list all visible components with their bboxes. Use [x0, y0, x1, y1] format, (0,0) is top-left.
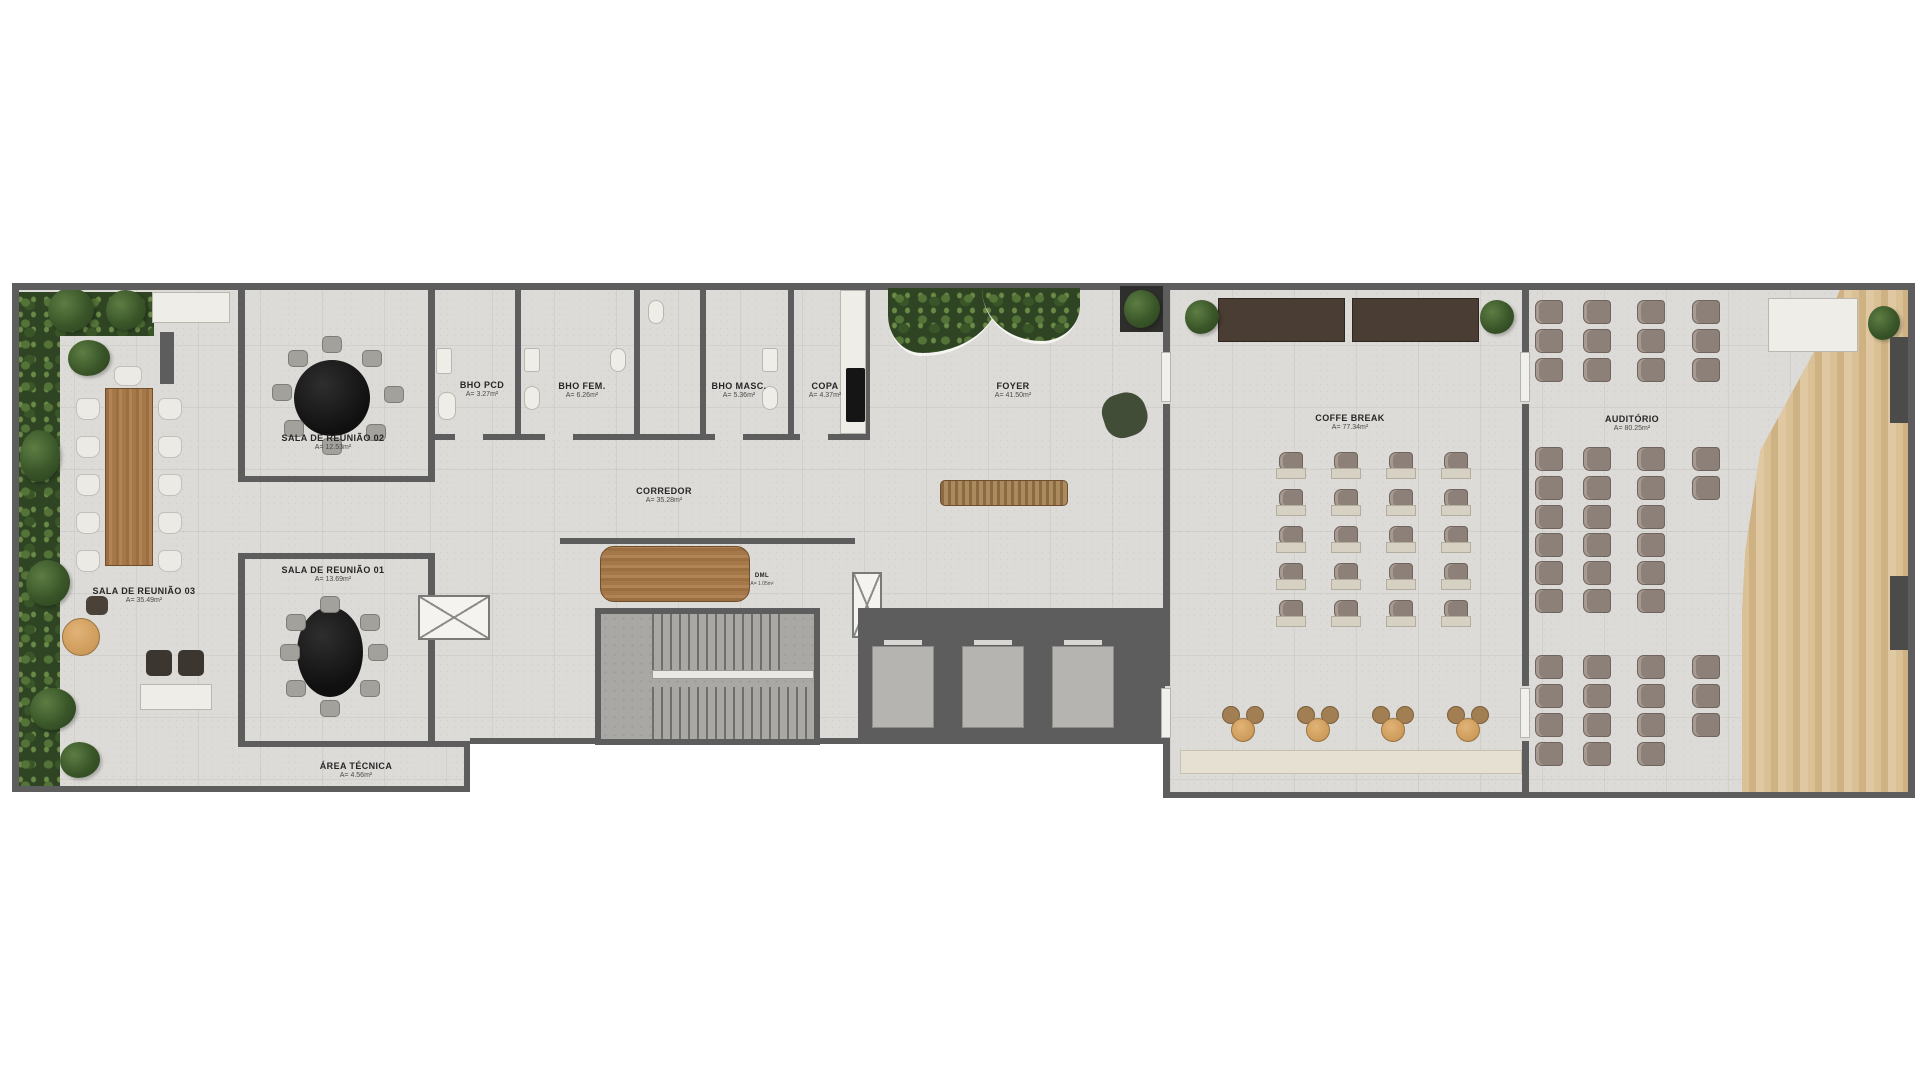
- auditorium-chair: [1692, 476, 1720, 500]
- wall-area-tecnica-right: [464, 747, 470, 792]
- wc-fixture: [524, 386, 540, 410]
- auditorium-chair: [1637, 505, 1665, 529]
- door-gap: [800, 434, 828, 440]
- auditorium-chair: [1535, 742, 1563, 766]
- wall-outer-bottom-right: [1170, 792, 1915, 798]
- meeting-chair: [114, 366, 142, 386]
- auditorium-chair: [1583, 684, 1611, 708]
- auditorium-chair: [1535, 329, 1563, 353]
- auditorium-chair: [1583, 655, 1611, 679]
- av-wall-cabinet: [1890, 337, 1908, 423]
- training-table: [1331, 542, 1361, 553]
- wall-bho-masc-left: [700, 283, 706, 440]
- meeting-chair: [320, 700, 340, 717]
- auditorium-chair: [1692, 329, 1720, 353]
- meeting-chair: [76, 398, 100, 420]
- floor-plan-canvas: SALA DE REUNIÃO 03 A= 35.49m² SALA DE RE…: [0, 0, 1920, 1080]
- training-table: [1441, 505, 1471, 516]
- wall-sala01-left: [238, 553, 245, 747]
- meeting-chair: [76, 512, 100, 534]
- foyer-slat-bench: [940, 480, 1068, 506]
- auditorium-chair: [1637, 358, 1665, 382]
- elevator-door: [1064, 640, 1102, 645]
- meeting-chair: [76, 436, 100, 458]
- auditorium-chair: [1535, 358, 1563, 382]
- auditorium-chair: [1535, 476, 1563, 500]
- door-gap: [545, 434, 573, 440]
- cooktop: [846, 368, 865, 422]
- auditorium-chair: [1637, 713, 1665, 737]
- shaft-duct-left: [418, 595, 490, 640]
- auditorium-chair: [1583, 742, 1611, 766]
- lounge-chair: [146, 650, 172, 676]
- wc-fixture: [610, 348, 626, 372]
- meeting-chair: [158, 436, 182, 458]
- wall-coffebreak-left: [1163, 283, 1170, 352]
- door-leaf: [1520, 352, 1530, 402]
- auditorium-chair: [1535, 684, 1563, 708]
- auditorium-chair: [1692, 655, 1720, 679]
- training-table: [1276, 542, 1306, 553]
- training-table: [1386, 616, 1416, 627]
- stair-flight-lower: [652, 687, 814, 739]
- auditorium-chair: [1535, 533, 1563, 557]
- wall-bho-fem-right: [634, 283, 640, 440]
- meeting-chair: [280, 644, 300, 661]
- auditorium-chair: [1692, 300, 1720, 324]
- auditorium-chair: [1535, 447, 1563, 471]
- av-wall-cabinet: [1890, 576, 1908, 650]
- meeting-chair: [362, 350, 382, 367]
- auditorium-chair: [1637, 561, 1665, 585]
- wall-stub-sala03: [160, 332, 174, 384]
- auditorium-chair: [1692, 447, 1720, 471]
- auditorium-chair: [1583, 533, 1611, 557]
- wall-area-tecnica-top: [238, 741, 470, 747]
- wall-outer-bottom-left: [12, 786, 470, 792]
- auditorium-chair: [1637, 684, 1665, 708]
- auditorium-chair: [1583, 358, 1611, 382]
- auditorium-chair: [1535, 561, 1563, 585]
- buffet-table: [1218, 298, 1345, 342]
- wall-coffebreak-left: [1163, 741, 1170, 798]
- wall-outer-right: [1908, 283, 1915, 798]
- auditorium-chair: [1535, 655, 1563, 679]
- auditorium-chair: [1692, 684, 1720, 708]
- training-table: [1386, 468, 1416, 479]
- auditorium-chair: [1637, 742, 1665, 766]
- auditorium-chair: [1692, 713, 1720, 737]
- wall-masc-copa: [788, 283, 794, 440]
- lounge-chair: [178, 650, 204, 676]
- elevator-car: [872, 646, 934, 728]
- wall-sala01-top: [238, 553, 434, 559]
- meeting-chair: [158, 474, 182, 496]
- training-table: [1386, 505, 1416, 516]
- training-table: [1441, 542, 1471, 553]
- auditorium-chair: [1583, 476, 1611, 500]
- training-table: [1276, 616, 1306, 627]
- training-table: [1441, 616, 1471, 627]
- wall-coffebreak-left: [1163, 404, 1170, 686]
- wc-fixture: [762, 348, 778, 372]
- training-table: [1276, 579, 1306, 590]
- training-table: [1331, 468, 1361, 479]
- auditorium-chair: [1637, 447, 1665, 471]
- stair-divider: [652, 670, 814, 679]
- door-leaf: [1161, 352, 1171, 402]
- wc-fixture: [648, 300, 664, 324]
- wall-sala01-right: [428, 553, 435, 747]
- training-table: [1276, 505, 1306, 516]
- wc-fixture: [436, 348, 452, 374]
- auditorium-chair: [1637, 476, 1665, 500]
- training-table: [1441, 579, 1471, 590]
- meeting-chair: [384, 386, 404, 403]
- elevator-car: [1052, 646, 1114, 728]
- wall-bho-pcd-fem: [515, 283, 521, 440]
- training-table: [1386, 579, 1416, 590]
- auditorium-chair: [1583, 447, 1611, 471]
- credenza: [140, 684, 212, 710]
- training-table: [1276, 468, 1306, 479]
- coffee-bench: [1180, 750, 1522, 774]
- wall-behind-reception: [560, 538, 855, 544]
- meeting-table-long: [105, 388, 153, 566]
- wall-auditorio-left: [1522, 283, 1529, 352]
- auditorium-chair: [1637, 300, 1665, 324]
- reception-desk: [600, 546, 750, 602]
- stair-flight-upper: [652, 614, 782, 670]
- small-round-table: [62, 618, 100, 656]
- meeting-chair: [158, 550, 182, 572]
- wall-sala02-bottom: [238, 476, 434, 482]
- stage-platform: [1768, 298, 1858, 352]
- wc-fixture: [762, 386, 778, 410]
- cafe-table: [1381, 718, 1405, 742]
- auditorium-chair: [1583, 589, 1611, 613]
- elevator-car: [962, 646, 1024, 728]
- training-table: [1386, 542, 1416, 553]
- oval-meeting-table: [297, 607, 363, 697]
- meeting-chair: [288, 350, 308, 367]
- meeting-chair: [76, 474, 100, 496]
- meeting-chair: [366, 424, 386, 441]
- wall-sala02-left: [238, 283, 245, 482]
- elevator-door: [884, 640, 922, 645]
- cafe-table: [1306, 718, 1330, 742]
- auditorium-chair: [1583, 300, 1611, 324]
- auditorium-chair: [1535, 713, 1563, 737]
- meeting-chair: [272, 384, 292, 401]
- auditorium-chair: [1583, 561, 1611, 585]
- meeting-chair: [322, 336, 342, 353]
- training-table: [1441, 468, 1471, 479]
- meeting-chair: [158, 512, 182, 534]
- cafe-table: [1231, 718, 1255, 742]
- training-table: [1331, 505, 1361, 516]
- auditorium-chair: [1583, 329, 1611, 353]
- auditorium-chair: [1637, 533, 1665, 557]
- door-leaf: [1161, 688, 1171, 738]
- wc-fixture: [524, 348, 540, 372]
- training-table: [1331, 616, 1361, 627]
- auditorium-chair: [1583, 713, 1611, 737]
- elevator-door: [974, 640, 1012, 645]
- meeting-chair: [286, 614, 306, 631]
- auditorium-chair: [1583, 505, 1611, 529]
- meeting-chair: [76, 550, 100, 572]
- wall-outer-left: [12, 283, 19, 792]
- meeting-chair: [320, 596, 340, 613]
- auditorium-chair: [1637, 329, 1665, 353]
- meeting-chair: [360, 614, 380, 631]
- meeting-chair: [286, 680, 306, 697]
- desk-chair: [86, 596, 108, 615]
- sideboard: [152, 292, 230, 323]
- door-leaf: [1520, 688, 1530, 738]
- wall-auditorio-left: [1522, 741, 1529, 798]
- meeting-chair: [368, 644, 388, 661]
- door-gap: [455, 434, 483, 440]
- buffet-table: [1352, 298, 1479, 342]
- training-table: [1331, 579, 1361, 590]
- cafe-table: [1456, 718, 1480, 742]
- auditorium-chair: [1637, 655, 1665, 679]
- meeting-chair: [360, 680, 380, 697]
- meeting-chair: [284, 420, 304, 437]
- meeting-chair: [158, 398, 182, 420]
- round-meeting-table: [294, 360, 370, 436]
- auditorium-chair: [1535, 300, 1563, 324]
- auditorium-chair: [1692, 358, 1720, 382]
- meeting-chair: [322, 438, 342, 455]
- door-gap: [715, 434, 743, 440]
- auditorium-chair: [1637, 589, 1665, 613]
- wall-auditorio-left: [1522, 404, 1529, 686]
- auditorium-chair: [1535, 589, 1563, 613]
- wall-sala02-right: [428, 283, 435, 482]
- wc-fixture: [438, 392, 456, 420]
- auditorium-chair: [1535, 505, 1563, 529]
